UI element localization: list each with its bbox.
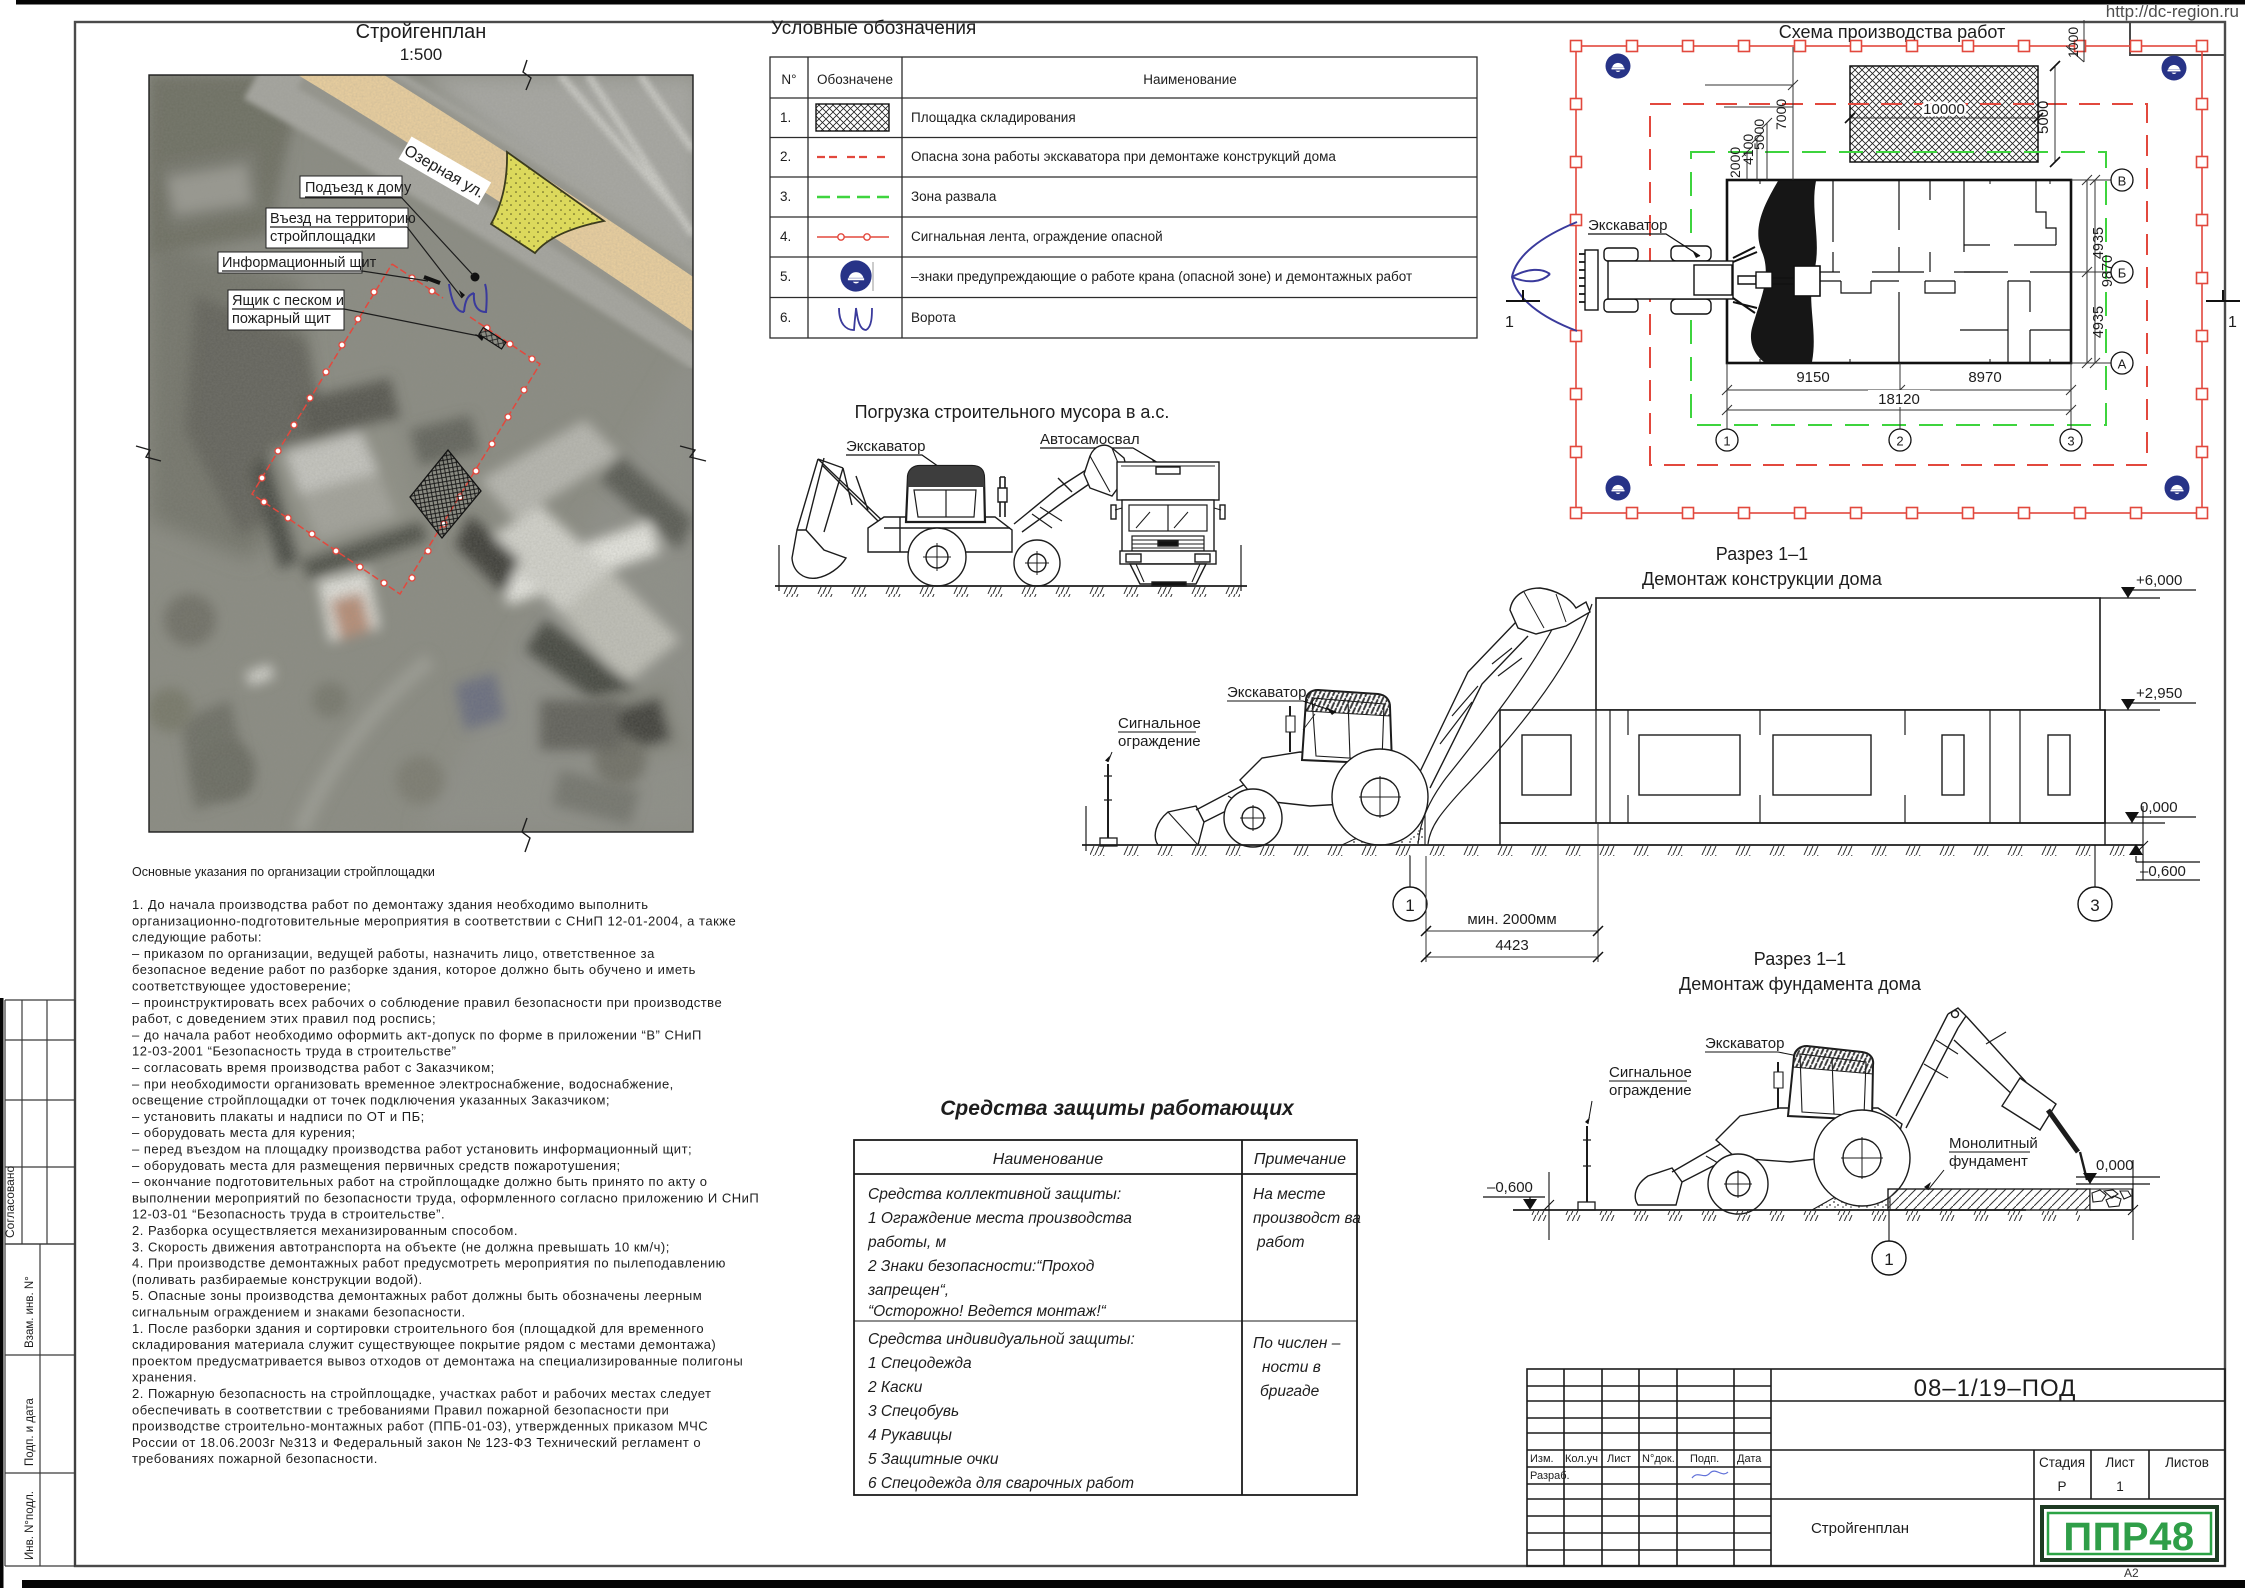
svg-text:Экскаватор: Экскаватор [1705,1035,1784,1052]
svg-text:4.: 4. [780,229,791,244]
svg-text:требованиях пожарной безопасно: требованиях пожарной безопасности. [132,1451,378,1466]
svg-text:складирования материала служит: складирования материала служит существую… [132,1337,716,1352]
svg-text:2.: 2. [780,149,791,164]
svg-text:10000: 10000 [1923,101,1965,118]
svg-text:Экскаватор: Экскаватор [846,438,925,455]
svg-text:– при необходимости орга: – при необходимости организовать временн… [132,1076,674,1091]
svg-text:стройплощадки: стройплощадки [270,229,376,245]
svg-text:Экскаватор: Экскаватор [1227,684,1306,701]
svg-text:1: 1 [2228,314,2237,331]
svg-text:соответствующее удостоверение;: соответствующее удостоверение; [132,979,351,994]
svg-text:Подп.: Подп. [1690,1453,1719,1465]
svg-text:запрещен“,: запрещен“, [867,1282,949,1299]
svg-text:Б: Б [2118,266,2127,281]
svg-text:Взам. инв. N°: Взам. инв. N° [24,1276,36,1348]
svg-text:0,000: 0,000 [2140,799,2178,816]
svg-text:+6,000: +6,000 [2136,572,2182,589]
svg-text:Разрез 1–1: Разрез 1–1 [1754,949,1846,969]
svg-text:Стадия: Стадия [2039,1455,2085,1470]
svg-text:7000: 7000 [1773,99,1789,130]
svg-text:Р: Р [2057,1479,2066,1494]
svg-text:4935: 4935 [2091,227,2107,259]
svg-text:– установить плакаты и н: – установить плакаты и надписи по ОТ и П… [132,1109,425,1124]
svg-text:6.: 6. [780,310,791,325]
svg-text:хранения.: хранения. [132,1370,197,1385]
svg-text:Разраб.: Разраб. [1530,1470,1570,1482]
svg-text:1000: 1000 [2065,27,2081,58]
svg-text:1: 1 [1505,314,1514,331]
svg-text:Ворота: Ворота [911,310,956,325]
svg-text:Экскаватор: Экскаватор [1588,217,1667,234]
svg-text:Демонтаж фундамента дома: Демонтаж фундамента дома [1679,974,1922,994]
svg-text:обеспечивать в соответствии с: обеспечивать в соответствии с требования… [132,1402,669,1417]
svg-text:Дата: Дата [1737,1453,1762,1465]
svg-text:Условные обозначения: Условные обозначения [771,18,976,39]
svg-text:Опасна зона работы экскаватора: Опасна зона работы экскаватора при демон… [911,149,1336,164]
svg-text:2. Разборка осуществляется мех: 2. Разборка осуществляется механизирован… [132,1223,518,1238]
svg-text:6 Спецодежда для сварочных раб: 6 Спецодежда для сварочных работ [868,1475,1134,1492]
svg-text:производстве строительно-монта: производстве строительно-монтажных работ… [132,1419,708,1434]
svg-text:Инв. N°подл.: Инв. N°подл. [24,1491,36,1560]
svg-text:освещение стройплощадки от точ: освещение стройплощадки от точек подключ… [132,1093,610,1108]
svg-text:Погрузка строительного мусора: Погрузка строительного мусора в а.с. [855,402,1170,422]
svg-text:Ящик с песком и: Ящик с песком и [232,293,344,309]
svg-text:–0,600: –0,600 [1487,1179,1533,1196]
svg-text:России от 18.06.2003г №313 и Ф: России от 18.06.2003г №313 и Федеральный… [132,1435,701,1450]
svg-text:производст ва: производст ва [1253,1210,1361,1227]
svg-text:фундамент: фундамент [1949,1153,2028,1170]
svg-text:Изм.: Изм. [1530,1453,1554,1465]
svg-text:ности в: ности в [1262,1359,1321,1376]
svg-text:Сигнальная лента, ограждение о: Сигнальная лента, ограждение опасной [911,229,1163,244]
svg-text:4 Рукавицы: 4 Рукавицы [868,1427,953,1444]
svg-text:(поливать разбираемые конструк: (поливать разбираемые конструкции водой)… [132,1272,423,1287]
svg-text:3: 3 [2067,434,2074,449]
svg-text:Монолитный: Монолитный [1949,1135,2038,1152]
svg-text:1: 1 [1884,1250,1893,1269]
svg-text:3 Спецобувь: 3 Спецобувь [868,1403,959,1420]
svg-text:Въезд на территорию: Въезд на территорию [270,211,416,227]
svg-text:безопасное ведение работ по ра: безопасное ведение работ по разборке зда… [132,962,696,977]
svg-text:+2,950: +2,950 [2136,685,2182,702]
svg-text:пожарный щит: пожарный щит [232,311,331,327]
svg-text:работ: работ [1256,1234,1305,1251]
svg-text:5 Защитные очки: 5 Защитные очки [868,1451,999,1468]
svg-text:Обозначене: Обозначене [817,72,893,87]
svg-text:выполнении мероприятий по безо: выполнении мероприятий по безопасности т… [132,1190,759,1205]
svg-text:Наименование: Наименование [993,1151,1104,1168]
svg-text:Автосамосвал: Автосамосвал [1040,431,1140,448]
svg-text:5. Опасные зоны производства д: 5. Опасные зоны производства демонтажных… [132,1288,702,1303]
svg-text:ППР48: ППР48 [2063,1515,2194,1559]
svg-text:2. Пожарную безопасность: 2. Пожарную безопасность на стройплощадк… [132,1386,711,1401]
svg-text:Разрез 1–1: Разрез 1–1 [1716,544,1808,564]
svg-text:ограждение: ограждение [1609,1082,1692,1099]
svg-text:4423: 4423 [1495,937,1528,954]
svg-text:4935: 4935 [2091,306,2107,338]
svg-text:1.: 1. [780,110,791,125]
svg-text:Зона развала: Зона развала [911,189,997,204]
svg-text:2: 2 [1896,434,1903,449]
svg-text:http://dc-region.ru: http://dc-region.ru [2106,2,2239,21]
svg-text:1. После разборки здания: 1. После разборки здания и сортировки ст… [132,1321,704,1336]
svg-text:По числен –: По числен – [1253,1335,1341,1352]
svg-text:Схема производства работ: Схема производства работ [1779,22,2006,42]
svg-text:–знаки предупреждающие о работ: –знаки предупреждающие о работе крана (о… [911,269,1412,284]
svg-text:Примечание: Примечание [1254,1151,1346,1168]
svg-text:0,000: 0,000 [2096,1157,2134,1174]
svg-text:1. До начала производства раб: 1. До начала производства работ по демон… [132,897,648,912]
svg-text:5000: 5000 [1751,119,1767,150]
svg-text:Демонтаж конструкции дома: Демонтаж конструкции дома [1642,569,1883,589]
svg-text:работы, м: работы, м [867,1234,947,1251]
svg-text:бригаде: бригаде [1260,1383,1320,1400]
svg-text:следующие работы:: следующие работы: [132,930,262,945]
svg-text:А2: А2 [2124,1566,2139,1580]
svg-text:– согласовать время прои: – согласовать время производства работ с… [132,1060,495,1075]
svg-text:12-03-2001 “Безопасность труда: 12-03-2001 “Безопасность труда в строите… [132,1044,456,1059]
svg-text:Лист: Лист [1607,1453,1631,1465]
svg-text:Площадка складирования: Площадка складирования [911,110,1076,125]
svg-text:– до начала работ необхо: – до начала работ необходимо оформить ак… [132,1027,702,1042]
svg-text:Информационный щит: Информационный щит [222,255,377,271]
svg-text:“Осторожно! Ведется монтаж!“: “Осторожно! Ведется монтаж!“ [868,1303,1107,1320]
svg-text:1: 1 [1405,896,1414,915]
svg-text:1: 1 [1723,434,1730,449]
svg-text:– оборудовать места для: – оборудовать места для курения; [132,1125,356,1140]
svg-text:Подп. и дата: Подп. и дата [24,1398,36,1466]
svg-text:ограждение: ограждение [1118,733,1201,750]
svg-text:организационно-подготовительны: организационно-подготовительные мероприя… [132,913,736,928]
svg-text:08–1/19–ПОД: 08–1/19–ПОД [1914,1375,2077,1402]
svg-text:18120: 18120 [1878,391,1920,408]
svg-text:работ, с доведением этих прави: работ, с доведением этих правил под росп… [132,1011,436,1026]
svg-text:– проинструктировать все: – проинструктировать всех рабочих о собл… [132,995,722,1010]
svg-text:Сигнальное: Сигнальное [1609,1064,1692,1081]
svg-text:5.: 5. [780,269,791,284]
svg-text:Основные указания по организац: Основные указания по организации стройпл… [132,865,435,879]
svg-text:сигнальным ограждением и знака: сигнальным ограждением и знаками безопас… [132,1305,466,1320]
svg-text:1 Ограждение места производств: 1 Ограждение места производства [868,1210,1132,1227]
svg-text:3. Скорость движения автотранс: 3. Скорость движения автотранспорта на о… [132,1239,670,1254]
svg-text:2 Каски: 2 Каски [867,1379,923,1396]
svg-text:Согласовано: Согласовано [3,1166,17,1238]
svg-text:Средства индивидуальной защиты: Средства индивидуальной защиты: [868,1331,1135,1348]
svg-text:Подъезд к дому: Подъезд к дому [305,180,412,196]
svg-text:5000: 5000 [2035,101,2052,134]
svg-text:–0,600: –0,600 [2140,863,2186,880]
svg-text:3: 3 [2090,896,2099,915]
svg-text:3.: 3. [780,189,791,204]
svg-text:9870: 9870 [2100,255,2116,287]
svg-text:На месте: На месте [1253,1186,1326,1203]
svg-text:4. При производстве демонтажн: 4. При производстве демонтажных работ пр… [132,1256,726,1271]
svg-text:12-03-01 “Безопасность труда: 12-03-01 “Безопасность труда в строитель… [132,1207,445,1222]
svg-text:А: А [2118,357,2127,372]
svg-text:Листов: Листов [2165,1455,2209,1470]
svg-text:– окончание подготовител: – окончание подготовительных работ на ст… [132,1174,707,1189]
svg-text:1:500: 1:500 [400,45,443,64]
svg-text:Лист: Лист [2105,1455,2134,1470]
svg-text:1: 1 [2116,1479,2124,1494]
svg-text:– приказом по организаци: – приказом по организации, ведущей работ… [132,946,655,961]
svg-text:проектом предусматривается выв: проектом предусматривается вывоз отходов… [132,1353,743,1368]
svg-text:9150: 9150 [1796,369,1829,386]
svg-text:Наименование: Наименование [1143,72,1237,87]
svg-text:2 Знаки безопасности:“Проход: 2 Знаки безопасности:“Проход [867,1258,1095,1275]
svg-text:Средства защиты работающих: Средства защиты работающих [940,1097,1295,1120]
svg-text:N°: N° [781,72,796,87]
svg-text:мин. 2000мм: мин. 2000мм [1467,911,1556,928]
svg-text:8970: 8970 [1968,369,2001,386]
svg-text:1 Спецодежда: 1 Спецодежда [868,1355,972,1372]
svg-text:Средства коллективной защиты:: Средства коллективной защиты: [868,1186,1121,1203]
svg-text:Сигнальное: Сигнальное [1118,715,1201,732]
svg-text:В: В [2118,174,2127,189]
svg-text:Стройгенплан: Стройгенплан [356,21,487,43]
svg-text:– оборудовать места для: – оборудовать места для размещения перви… [132,1158,621,1173]
svg-text:Кол.уч: Кол.уч [1565,1453,1598,1465]
svg-text:Стройгенплан: Стройгенплан [1811,1520,1909,1537]
svg-text:– перед въездом на площа: – перед въездом на площадку производства… [132,1142,692,1157]
svg-text:N°док.: N°док. [1642,1453,1675,1465]
